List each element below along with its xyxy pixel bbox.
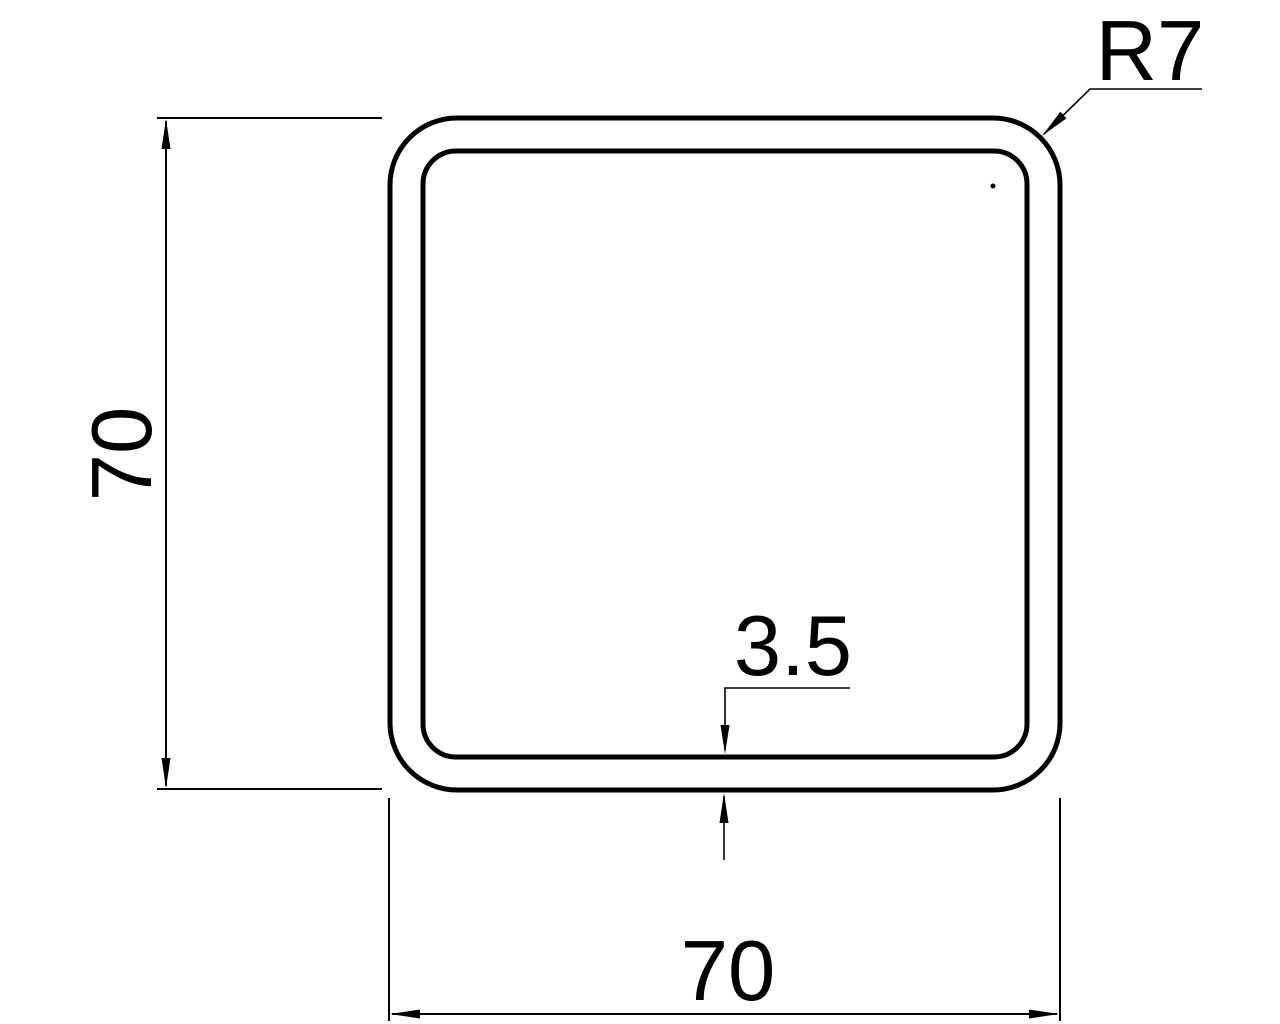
width-arrow-left-icon bbox=[390, 1010, 420, 1019]
width-dimension-label: 70 bbox=[681, 924, 776, 1019]
corner-radius-label: R7 bbox=[1096, 4, 1205, 99]
corner-radius-arrow-icon bbox=[1042, 112, 1067, 136]
wall-thickness-arrow-down-icon bbox=[721, 725, 730, 754]
wall-thickness-dimension: 3.5 bbox=[720, 599, 853, 860]
height-arrow-up-icon bbox=[162, 119, 171, 149]
height-dimension-label: 70 bbox=[75, 407, 170, 502]
width-arrow-right-icon bbox=[1029, 1010, 1059, 1019]
wall-thickness-arrow-up-icon bbox=[720, 793, 729, 823]
corner-arc-center-dot bbox=[991, 184, 996, 189]
wall-thickness-leader-line bbox=[725, 688, 850, 750]
inner-profile bbox=[423, 151, 1027, 757]
corner-radius-dimension: R7 bbox=[1042, 4, 1204, 136]
wall-thickness-label: 3.5 bbox=[734, 599, 852, 694]
height-arrow-down-icon bbox=[162, 758, 171, 788]
technical-drawing-canvas: 70 70 3.5 R7 bbox=[0, 0, 1280, 1024]
height-dimension: 70 bbox=[75, 118, 382, 789]
